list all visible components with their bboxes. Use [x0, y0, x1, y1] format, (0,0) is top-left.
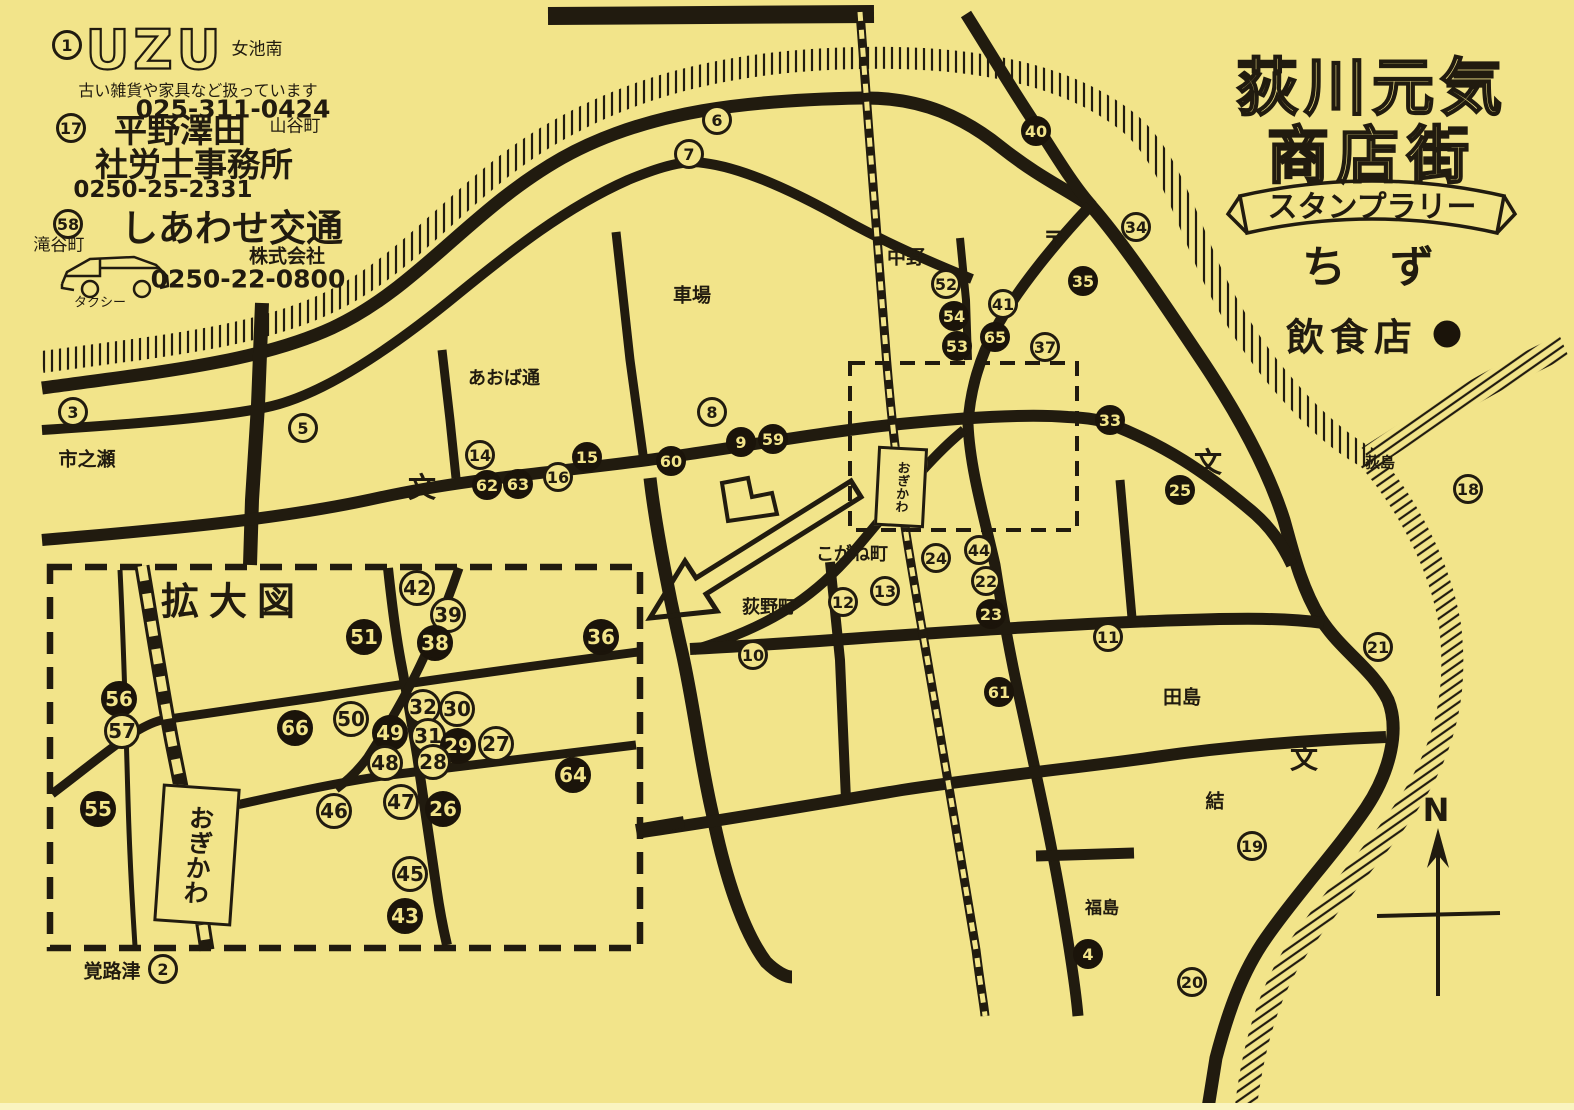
- ad-hirano-area: 山谷町: [270, 112, 321, 137]
- inset-marker-55: 55: [80, 791, 116, 827]
- map-marker-63: 63: [503, 469, 533, 499]
- map-marker-22: 22: [971, 566, 1001, 596]
- map-marker-2: 2: [148, 954, 178, 984]
- place-label-覚路津: 覚路津: [83, 957, 140, 984]
- map-marker-10: 10: [738, 640, 768, 670]
- scan-edge: [0, 1103, 1574, 1110]
- place-label-〒: 〒: [1043, 222, 1065, 254]
- ad-uzu-area: 女池南: [232, 35, 283, 60]
- place-label-文: 文: [408, 466, 436, 506]
- map-marker-4: 4: [1073, 939, 1103, 969]
- inset-marker-57: 57: [104, 713, 140, 749]
- inset-road-thin: [120, 570, 135, 946]
- map-marker-1: 1: [52, 30, 82, 60]
- legend-label: 飲食店: [1286, 307, 1418, 362]
- map-marker-37: 37: [1030, 332, 1060, 362]
- map-marker-7: 7: [674, 139, 704, 169]
- road-y2: [642, 737, 1386, 832]
- map-marker-12: 12: [828, 587, 858, 617]
- road-aoba-st: [442, 350, 456, 478]
- map-marker-20: 20: [1177, 967, 1207, 997]
- road-shopping-street: [42, 416, 1292, 565]
- l-building: [722, 478, 777, 521]
- inset-marker-47: 47: [383, 784, 419, 820]
- map-marker-9: 9: [726, 427, 756, 457]
- map-marker-41: 41: [988, 289, 1018, 319]
- place-label-こがね町: こがね町: [816, 540, 888, 566]
- map-word: ち ず: [1302, 231, 1434, 295]
- inset-marker-27: 27: [478, 726, 514, 762]
- map-marker-59: 59: [758, 424, 788, 454]
- map-marker-33: 33: [1095, 405, 1125, 435]
- place-label-文: 文: [1290, 737, 1318, 777]
- inset-label: 拡大図: [161, 571, 305, 626]
- ad-uzu-logo: UZU: [86, 19, 225, 82]
- road-top-bar: [548, 14, 874, 16]
- map-marker-5: 5: [288, 413, 318, 443]
- map-marker-19: 19: [1237, 831, 1267, 861]
- inset-marker-56: 56: [101, 681, 137, 717]
- ad-shiawase-phone: 0250-22-0800: [151, 265, 346, 294]
- ad-shiawase-vehicle: タクシー: [74, 292, 126, 311]
- map-marker-11: 11: [1093, 622, 1123, 652]
- inset-marker-38: 38: [417, 625, 453, 661]
- map-marker-25: 25: [1165, 475, 1195, 505]
- place-label-荻島: 荻島: [1365, 452, 1395, 473]
- map-marker-8: 8: [697, 397, 727, 427]
- inset-marker-66: 66: [277, 710, 313, 746]
- map-marker-23: 23: [976, 599, 1006, 629]
- inset-marker-36: 36: [583, 619, 619, 655]
- station-ogikawa-inset: おぎかわ: [153, 783, 240, 926]
- place-label-あおば通: あおば通: [468, 364, 540, 390]
- map-marker-54: 54: [939, 301, 969, 331]
- inset-marker-48: 48: [367, 745, 403, 781]
- inset-marker-30: 30: [439, 691, 475, 727]
- inset-marker-43: 43: [387, 898, 423, 934]
- compass: [1377, 828, 1500, 996]
- place-label-田島: 田島: [1163, 683, 1201, 710]
- compass-n-label: N: [1423, 791, 1450, 829]
- map-marker-3: 3: [58, 397, 88, 427]
- place-label-中野: 中野: [887, 243, 925, 270]
- map-marker-21: 21: [1363, 632, 1393, 662]
- inset-road-stub: [636, 822, 684, 830]
- map-marker-52: 52: [931, 269, 961, 299]
- inset-marker-45: 45: [392, 856, 428, 892]
- road-west-vertical: [250, 303, 262, 565]
- map-marker-15: 15: [572, 442, 602, 472]
- road-shaba-st: [616, 232, 644, 462]
- inset-marker-51: 51: [346, 619, 382, 655]
- station-ogikawa-main: おぎかわ: [874, 446, 928, 529]
- map-marker-65: 65: [980, 322, 1010, 352]
- inset-marker-42: 42: [399, 570, 435, 606]
- map-marker-6: 6: [702, 105, 732, 135]
- map-marker-24: 24: [921, 543, 951, 573]
- stamp-rally-map: 荻川元気 商店街 スタンプラリー ち ず 飲食店 UZU 女池南 古い雑貨や家具…: [0, 0, 1574, 1110]
- map-marker-17: 17: [56, 113, 86, 143]
- map-marker-16: 16: [543, 462, 573, 492]
- inset-marker-26: 26: [425, 791, 461, 827]
- inset-marker-50: 50: [333, 701, 369, 737]
- road-v4: [1120, 480, 1132, 618]
- map-marker-35: 35: [1068, 266, 1098, 296]
- map-marker-53: 53: [942, 331, 972, 361]
- road-fukushima: [1036, 853, 1134, 856]
- place-label-福島: 福島: [1085, 894, 1119, 919]
- map-marker-58: 58: [53, 209, 83, 239]
- inset-marker-28: 28: [415, 744, 451, 780]
- map-marker-18: 18: [1453, 474, 1483, 504]
- map-marker-34: 34: [1121, 212, 1151, 242]
- map-marker-14: 14: [465, 440, 495, 470]
- map-marker-60: 60: [656, 446, 686, 476]
- map-marker-13: 13: [870, 576, 900, 606]
- place-label-荻野町: 荻野町: [742, 593, 796, 619]
- place-label-結: 結: [1205, 787, 1224, 814]
- map-marker-40: 40: [1021, 116, 1051, 146]
- place-label-車場: 車場: [673, 281, 711, 308]
- inset-marker-46: 46: [316, 793, 352, 829]
- map-marker-44: 44: [964, 535, 994, 565]
- place-label-文: 文: [1194, 441, 1222, 481]
- place-label-市之瀬: 市之瀬: [58, 445, 115, 472]
- road-40: [966, 14, 1092, 206]
- banner-text: スタンプラリー: [1267, 182, 1476, 226]
- map-marker-61: 61: [984, 677, 1014, 707]
- map-marker-62: 62: [472, 470, 502, 500]
- legend-restaurant-dot: [1434, 321, 1461, 348]
- inset-marker-64: 64: [555, 757, 591, 793]
